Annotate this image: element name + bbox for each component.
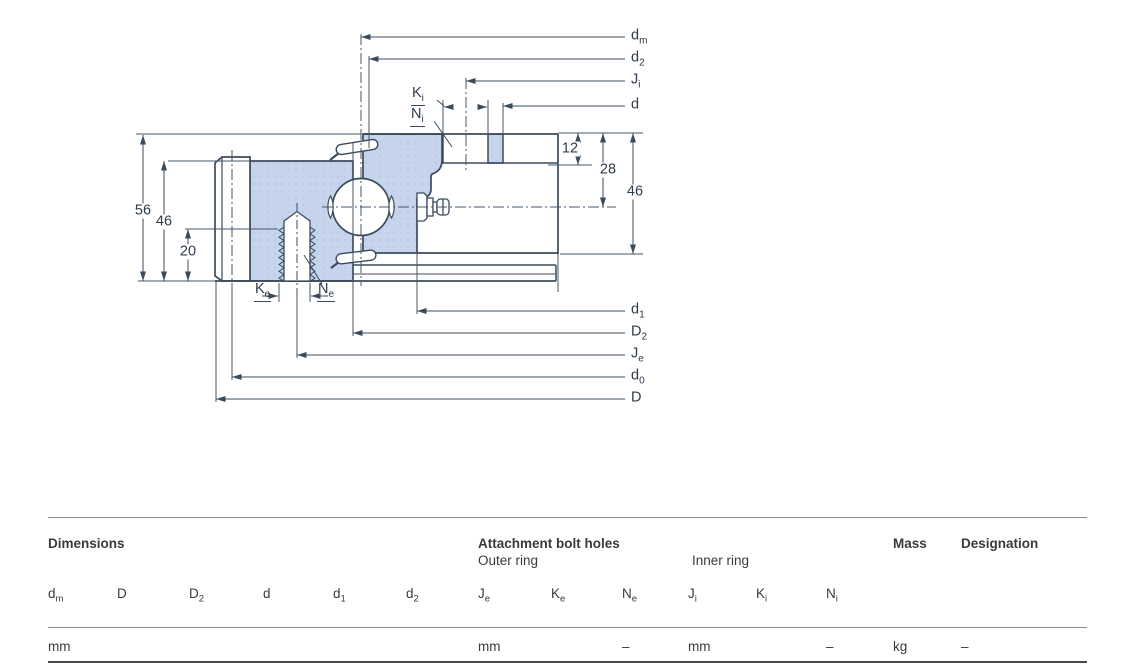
col-d2: d2: [406, 586, 419, 605]
catalog-page: 56 46 20 12 28 46 dm d2 Ji d d1 D2 Je d0…: [0, 0, 1135, 670]
dim-label-ji: Ji: [631, 72, 640, 91]
unit-cell: –: [826, 639, 834, 654]
col-d1: d1: [333, 586, 346, 605]
header-mass: Mass: [893, 536, 927, 551]
col-D2: D2: [189, 586, 204, 605]
dim-label-d: d: [631, 97, 639, 116]
dim-label-D2: D2: [631, 324, 647, 343]
dim-label-je: Je: [631, 346, 644, 365]
callout-ke: Ke: [254, 281, 271, 302]
unit-cell: mm: [48, 639, 71, 654]
dim-label-d0: d0: [631, 368, 645, 387]
unit-cell: kg: [893, 639, 907, 654]
col-ji: Ji: [688, 586, 697, 605]
col-je: Je: [478, 586, 490, 605]
dim-value-46-left: 46: [154, 215, 174, 230]
dim-label-d2: d2: [631, 50, 645, 69]
col-ne: Ne: [622, 586, 637, 605]
unit-cell: mm: [478, 639, 501, 654]
col-dm: dm: [48, 586, 63, 605]
callout-ne: Ne: [317, 281, 335, 302]
col-ke: Ke: [551, 586, 565, 605]
dim-value-28: 28: [598, 163, 618, 178]
unit-cell: –: [622, 639, 630, 654]
dim-label-d1: d1: [631, 302, 645, 321]
table-rule-bottom: [48, 661, 1087, 663]
dim-label-dm: dm: [631, 28, 647, 47]
callout-ni: Ni: [410, 106, 425, 127]
header-inner-ring: Inner ring: [692, 553, 749, 568]
col-ni: Ni: [826, 586, 838, 605]
header-outer-ring: Outer ring: [478, 553, 538, 568]
header-attachment-bolt-holes: Attachment bolt holes: [478, 536, 620, 551]
table-rule-top: [48, 517, 1087, 518]
dim-label-D: D: [631, 390, 641, 409]
col-d: d: [263, 586, 271, 605]
header-designation: Designation: [961, 536, 1038, 551]
header-dimensions: Dimensions: [48, 536, 125, 551]
dim-value-12: 12: [560, 142, 580, 157]
dim-value-56: 56: [133, 204, 153, 219]
col-D: D: [117, 586, 127, 605]
dim-value-20: 20: [178, 245, 198, 260]
col-ki: Ki: [756, 586, 767, 605]
unit-cell: mm: [688, 639, 711, 654]
callout-ki: Ki: [411, 85, 425, 106]
unit-cell: –: [961, 639, 969, 654]
table-rule-middle: [48, 627, 1087, 628]
bearing-cross-section-drawing: [0, 0, 1135, 470]
dim-value-46-right: 46: [625, 185, 645, 200]
